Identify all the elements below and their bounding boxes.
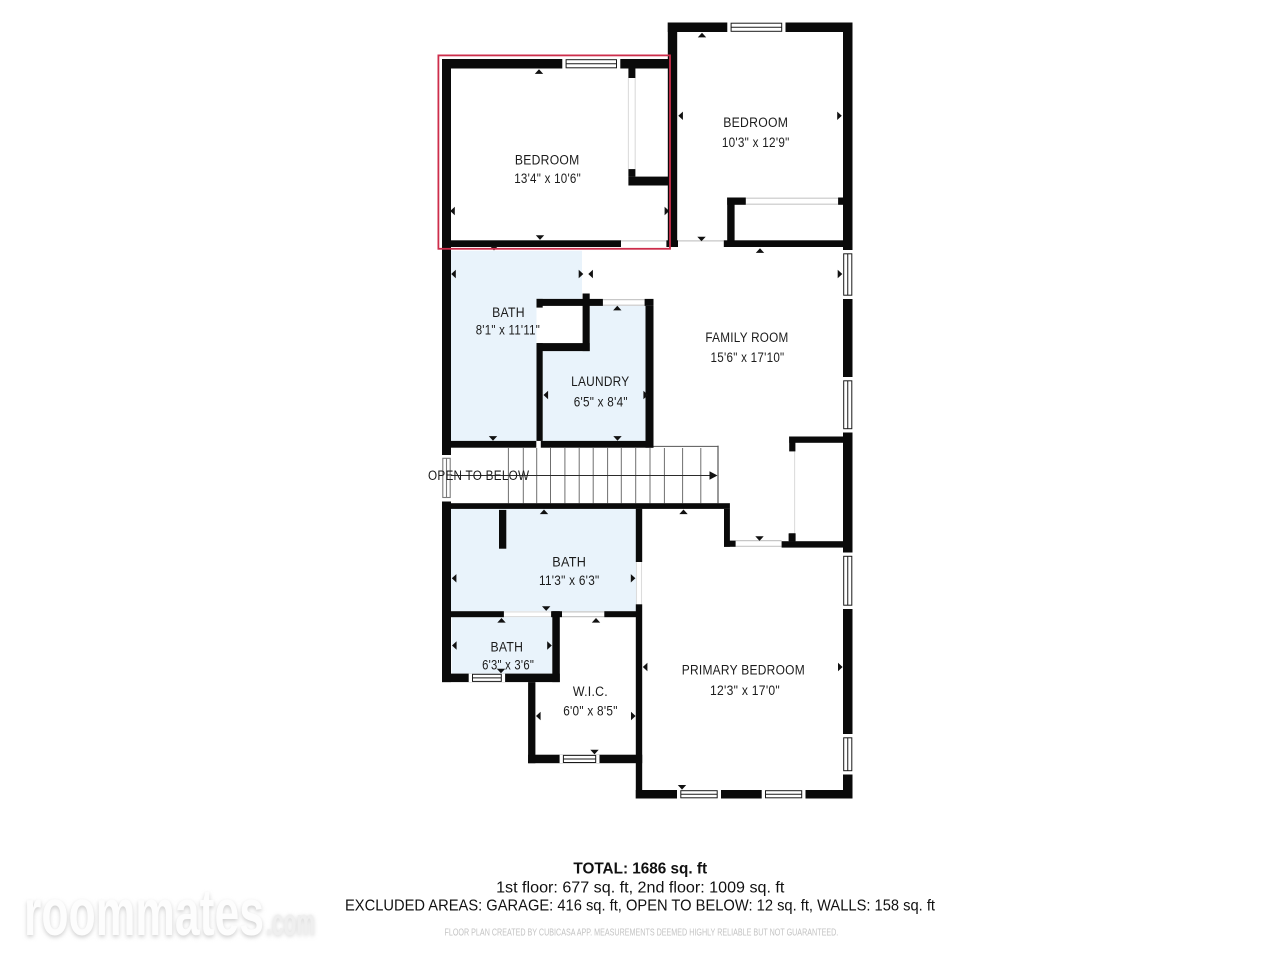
svg-text:12'3" x 17'0": 12'3" x 17'0" <box>710 683 780 698</box>
svg-text:8'1" x 11'11": 8'1" x 11'11" <box>476 322 540 337</box>
svg-text:.com: .com <box>266 902 315 944</box>
svg-text:LAUNDRY: LAUNDRY <box>571 374 629 389</box>
svg-text:FAMILY ROOM: FAMILY ROOM <box>705 330 788 345</box>
svg-text:roommates: roommates <box>24 875 264 949</box>
svg-text:11'3" x 6'3": 11'3" x 6'3" <box>539 573 600 588</box>
svg-text:6'3" x 3'6": 6'3" x 3'6" <box>482 657 534 672</box>
svg-text:BATH: BATH <box>491 639 524 654</box>
svg-text:TOTAL: 1686 sq. ft: TOTAL: 1686 sq. ft <box>573 860 707 877</box>
svg-text:PRIMARY BEDROOM: PRIMARY BEDROOM <box>682 663 805 678</box>
svg-text:BATH: BATH <box>552 554 586 569</box>
svg-text:FLOOR PLAN CREATED BY CUBICASA: FLOOR PLAN CREATED BY CUBICASA APP. MEAS… <box>445 927 839 938</box>
svg-text:10'3" x 12'9": 10'3" x 12'9" <box>722 135 790 150</box>
svg-text:6'5" x 8'4": 6'5" x 8'4" <box>574 394 628 409</box>
svg-text:1st floor: 677 sq. ft, 2nd flo: 1st floor: 677 sq. ft, 2nd floor: 1009 s… <box>496 879 785 896</box>
svg-text:13'4" x 10'6": 13'4" x 10'6" <box>514 171 581 186</box>
svg-text:BEDROOM: BEDROOM <box>723 115 788 130</box>
svg-text:BATH: BATH <box>492 305 525 320</box>
svg-text:W.I.C.: W.I.C. <box>573 684 608 699</box>
svg-text:EXCLUDED AREAS: GARAGE: 416 sq: EXCLUDED AREAS: GARAGE: 416 sq. ft, OPEN… <box>345 898 936 915</box>
svg-text:6'0" x 8'5": 6'0" x 8'5" <box>563 703 618 718</box>
svg-text:BEDROOM: BEDROOM <box>515 152 580 167</box>
svg-text:OPEN TO BELOW: OPEN TO BELOW <box>428 468 529 483</box>
svg-text:15'6" x 17'10": 15'6" x 17'10" <box>711 350 785 365</box>
